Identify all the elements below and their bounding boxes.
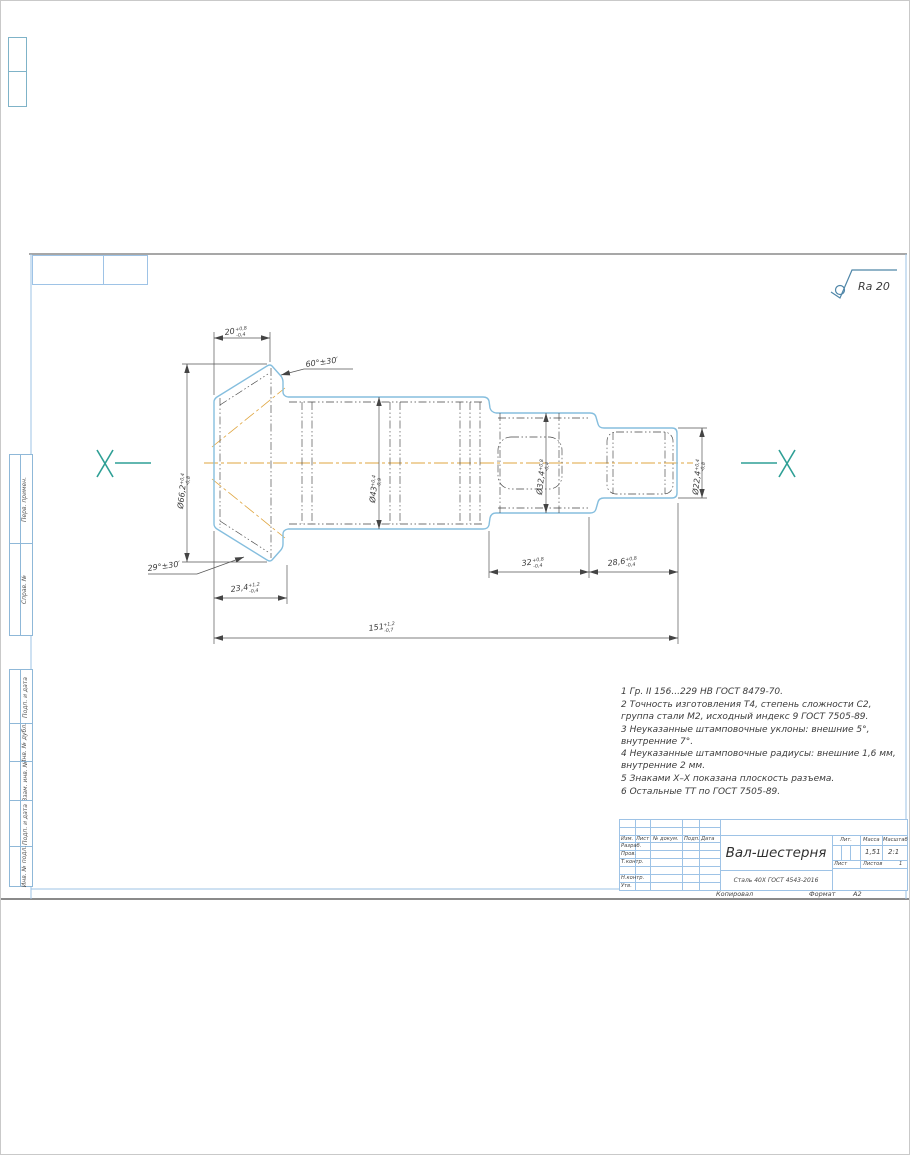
aux-box-divider — [9, 71, 26, 72]
drawing-sheet: 20 +0,8 -0,4 60°±30′ Ø66,2 +0,4 -0,8 Ø43… — [0, 0, 910, 1155]
svg-text:23,4: 23,4 — [230, 583, 249, 594]
tb-row-utv: Утв. — [621, 883, 632, 889]
note-line: 3 Неуказанные штамповочные уклоны: внешн… — [621, 725, 897, 749]
sheet-frame — [1, 254, 909, 899]
dim-dia-66: Ø66,2 +0,4 -0,8 — [175, 473, 192, 511]
tb-header-doc: № докум. — [653, 836, 679, 842]
material: Сталь 40Х ГОСТ 4543-2016 — [720, 870, 832, 890]
tb-header-data: Дата — [701, 836, 714, 842]
tb-sheets-value: 1 — [899, 861, 902, 867]
svg-text:-0,4: -0,4 — [544, 462, 551, 472]
tb-row-razrab: Разраб. — [621, 843, 641, 849]
svg-text:Ø22,4: Ø22,4 — [690, 470, 703, 496]
svg-text:-0,8: -0,8 — [185, 476, 192, 486]
svg-text:Ø32,4: Ø32,4 — [534, 470, 547, 496]
format-label: Формат — [809, 890, 835, 898]
technical-requirements: 1 Гр. II 156...229 НВ ГОСТ 8479-70. 2 То… — [621, 687, 897, 800]
svg-text:+0,4: +0,4 — [179, 473, 186, 485]
title-block: Изм. Лист № докум. Подп. Дата Разраб. Пр… — [619, 819, 908, 891]
margin-label: Подп. и дата — [22, 804, 29, 845]
tb-mass-value: 1,51 — [865, 848, 881, 856]
margin-box-divider — [20, 670, 21, 724]
margin-label: Справ. № — [22, 575, 29, 604]
dim-length-151: 151 +1,2 -0,7 — [368, 620, 396, 636]
top-left-aux-box — [8, 37, 27, 107]
tb-row-prov: Пров. — [621, 851, 636, 857]
margin-box-podp-data-1: Подп. и дата — [9, 669, 33, 725]
section-mark-right — [741, 450, 795, 477]
svg-text:+0,8: +0,8 — [625, 555, 637, 563]
svg-text:-0,9: -0,9 — [376, 478, 383, 488]
margin-box-inv-dubl: Инв. № дубл. — [9, 723, 33, 763]
tb-row-nkontr: Н.контр. — [621, 875, 644, 881]
margin-label: Взам. инв. № — [22, 761, 29, 802]
tb-lit-label: Лит. — [840, 837, 852, 843]
svg-text:28,6: 28,6 — [607, 557, 626, 568]
drawing-canvas: 20 +0,8 -0,4 60°±30′ Ø66,2 +0,4 -0,8 Ø43… — [1, 1, 909, 1154]
margin-label: Инв. № подл. — [22, 846, 29, 887]
part-name: Вал-шестерня — [720, 835, 832, 870]
svg-text:151: 151 — [368, 622, 384, 633]
tb-header-izm: Изм. — [621, 836, 633, 842]
note-line: 6 Остальные ТТ по ГОСТ 7505-89. — [621, 787, 897, 799]
tb-mass-label: Масса — [863, 837, 880, 843]
svg-text:+0,8: +0,8 — [532, 556, 544, 564]
svg-text:20: 20 — [224, 327, 235, 337]
margin-box-divider — [20, 801, 21, 847]
svg-text:+0,8: +0,8 — [538, 459, 545, 471]
svg-text:+0,4: +0,4 — [370, 475, 377, 487]
tb-header-podp: Подп. — [684, 836, 700, 842]
dim-length-28: 28,6 +0,8 -0,4 — [607, 555, 638, 572]
tb-row-tkontr: Т.контр. — [621, 859, 643, 865]
margin-box-perv-primen: Перв. примен. — [9, 454, 33, 545]
margin-box-podp-data-2: Подп. и дата — [9, 800, 33, 848]
margin-label: Перв. примен. — [22, 477, 29, 522]
svg-text:Ra 20: Ra 20 — [858, 280, 890, 293]
tb-sheet-label: Лист — [834, 861, 847, 867]
tb-scale-label: Масштаб — [883, 837, 908, 843]
svg-text:+0,4: +0,4 — [694, 459, 701, 471]
top-left-stamp-box — [32, 255, 148, 285]
margin-box-inv-podl: Инв. № подл. — [9, 846, 33, 887]
dim-dia-22: Ø22,4 +0,4 -0,8 — [690, 459, 707, 497]
note-line: 2 Точность изготовления Т4, степень слож… — [621, 700, 897, 724]
dimension-lines — [148, 332, 707, 644]
margin-box-divider — [20, 762, 21, 801]
dim-length-23: 23,4 +1,2 -0,4 — [230, 581, 261, 598]
format-value: А2 — [853, 890, 862, 898]
svg-text:32: 32 — [521, 558, 532, 568]
tb-scale-value: 2:1 — [888, 848, 899, 856]
svg-text:+1,2: +1,2 — [248, 581, 260, 589]
svg-text:+0,8: +0,8 — [235, 325, 247, 333]
note-line: 5 Знаками Х–Х показана плоскость разъема… — [621, 774, 897, 786]
margin-label: Подп. и дата — [22, 677, 29, 718]
dim-angle-60: 60°±30′ — [305, 355, 339, 369]
margin-box-sprav-no: Справ. № — [9, 543, 33, 636]
dim-dia-32: Ø32,4 +0,8 -0,4 — [534, 459, 551, 497]
dim-angle-29: 29°±30′ — [147, 559, 181, 573]
svg-text:+1,2: +1,2 — [383, 621, 395, 629]
dim-dia-43: Ø43 +0,4 -0,9 — [367, 475, 383, 505]
copied-label: Копировал — [716, 890, 753, 898]
svg-text:Ø66,2: Ø66,2 — [175, 484, 188, 510]
note-line: 1 Гр. II 156...229 НВ ГОСТ 8479-70. — [621, 687, 897, 699]
svg-text:-0,8: -0,8 — [700, 462, 707, 472]
svg-text:Ø43: Ø43 — [367, 486, 379, 504]
note-line: 4 Неуказанные штамповочные радиусы: внеш… — [621, 749, 897, 773]
tb-sheets-label: Листов — [863, 861, 882, 867]
dim-length-32: 32 +0,8 -0,4 — [521, 556, 545, 572]
margin-box-vzam-inv: Взам. инв. № — [9, 761, 33, 802]
margin-label: Инв. № дубл. — [22, 722, 29, 763]
stamp-box-divider — [103, 256, 104, 284]
roughness-mark: Ra 20 — [831, 270, 897, 298]
tb-header-list: Лист — [636, 836, 649, 842]
section-mark-left — [97, 450, 151, 477]
